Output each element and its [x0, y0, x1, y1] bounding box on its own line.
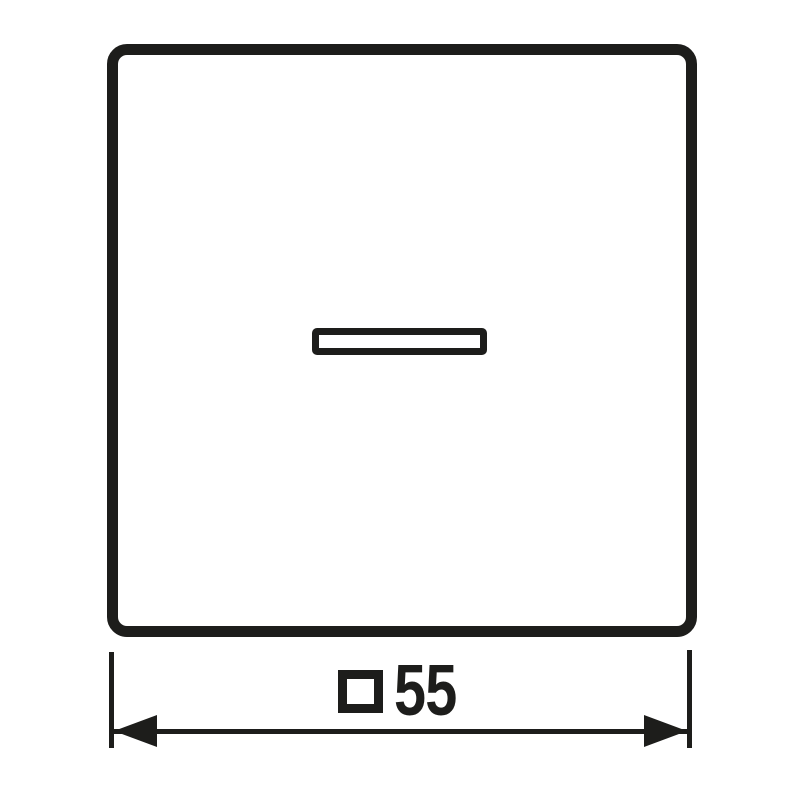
dimension-value: 55 [394, 660, 456, 722]
dimension-drawing: 55 [0, 0, 800, 800]
dimension-label: 55 [338, 660, 472, 722]
indicator-lens-window [312, 328, 487, 355]
arrowhead-right-icon [644, 715, 687, 747]
square-outline-icon [338, 670, 383, 713]
arrowhead-left-icon [114, 715, 157, 747]
